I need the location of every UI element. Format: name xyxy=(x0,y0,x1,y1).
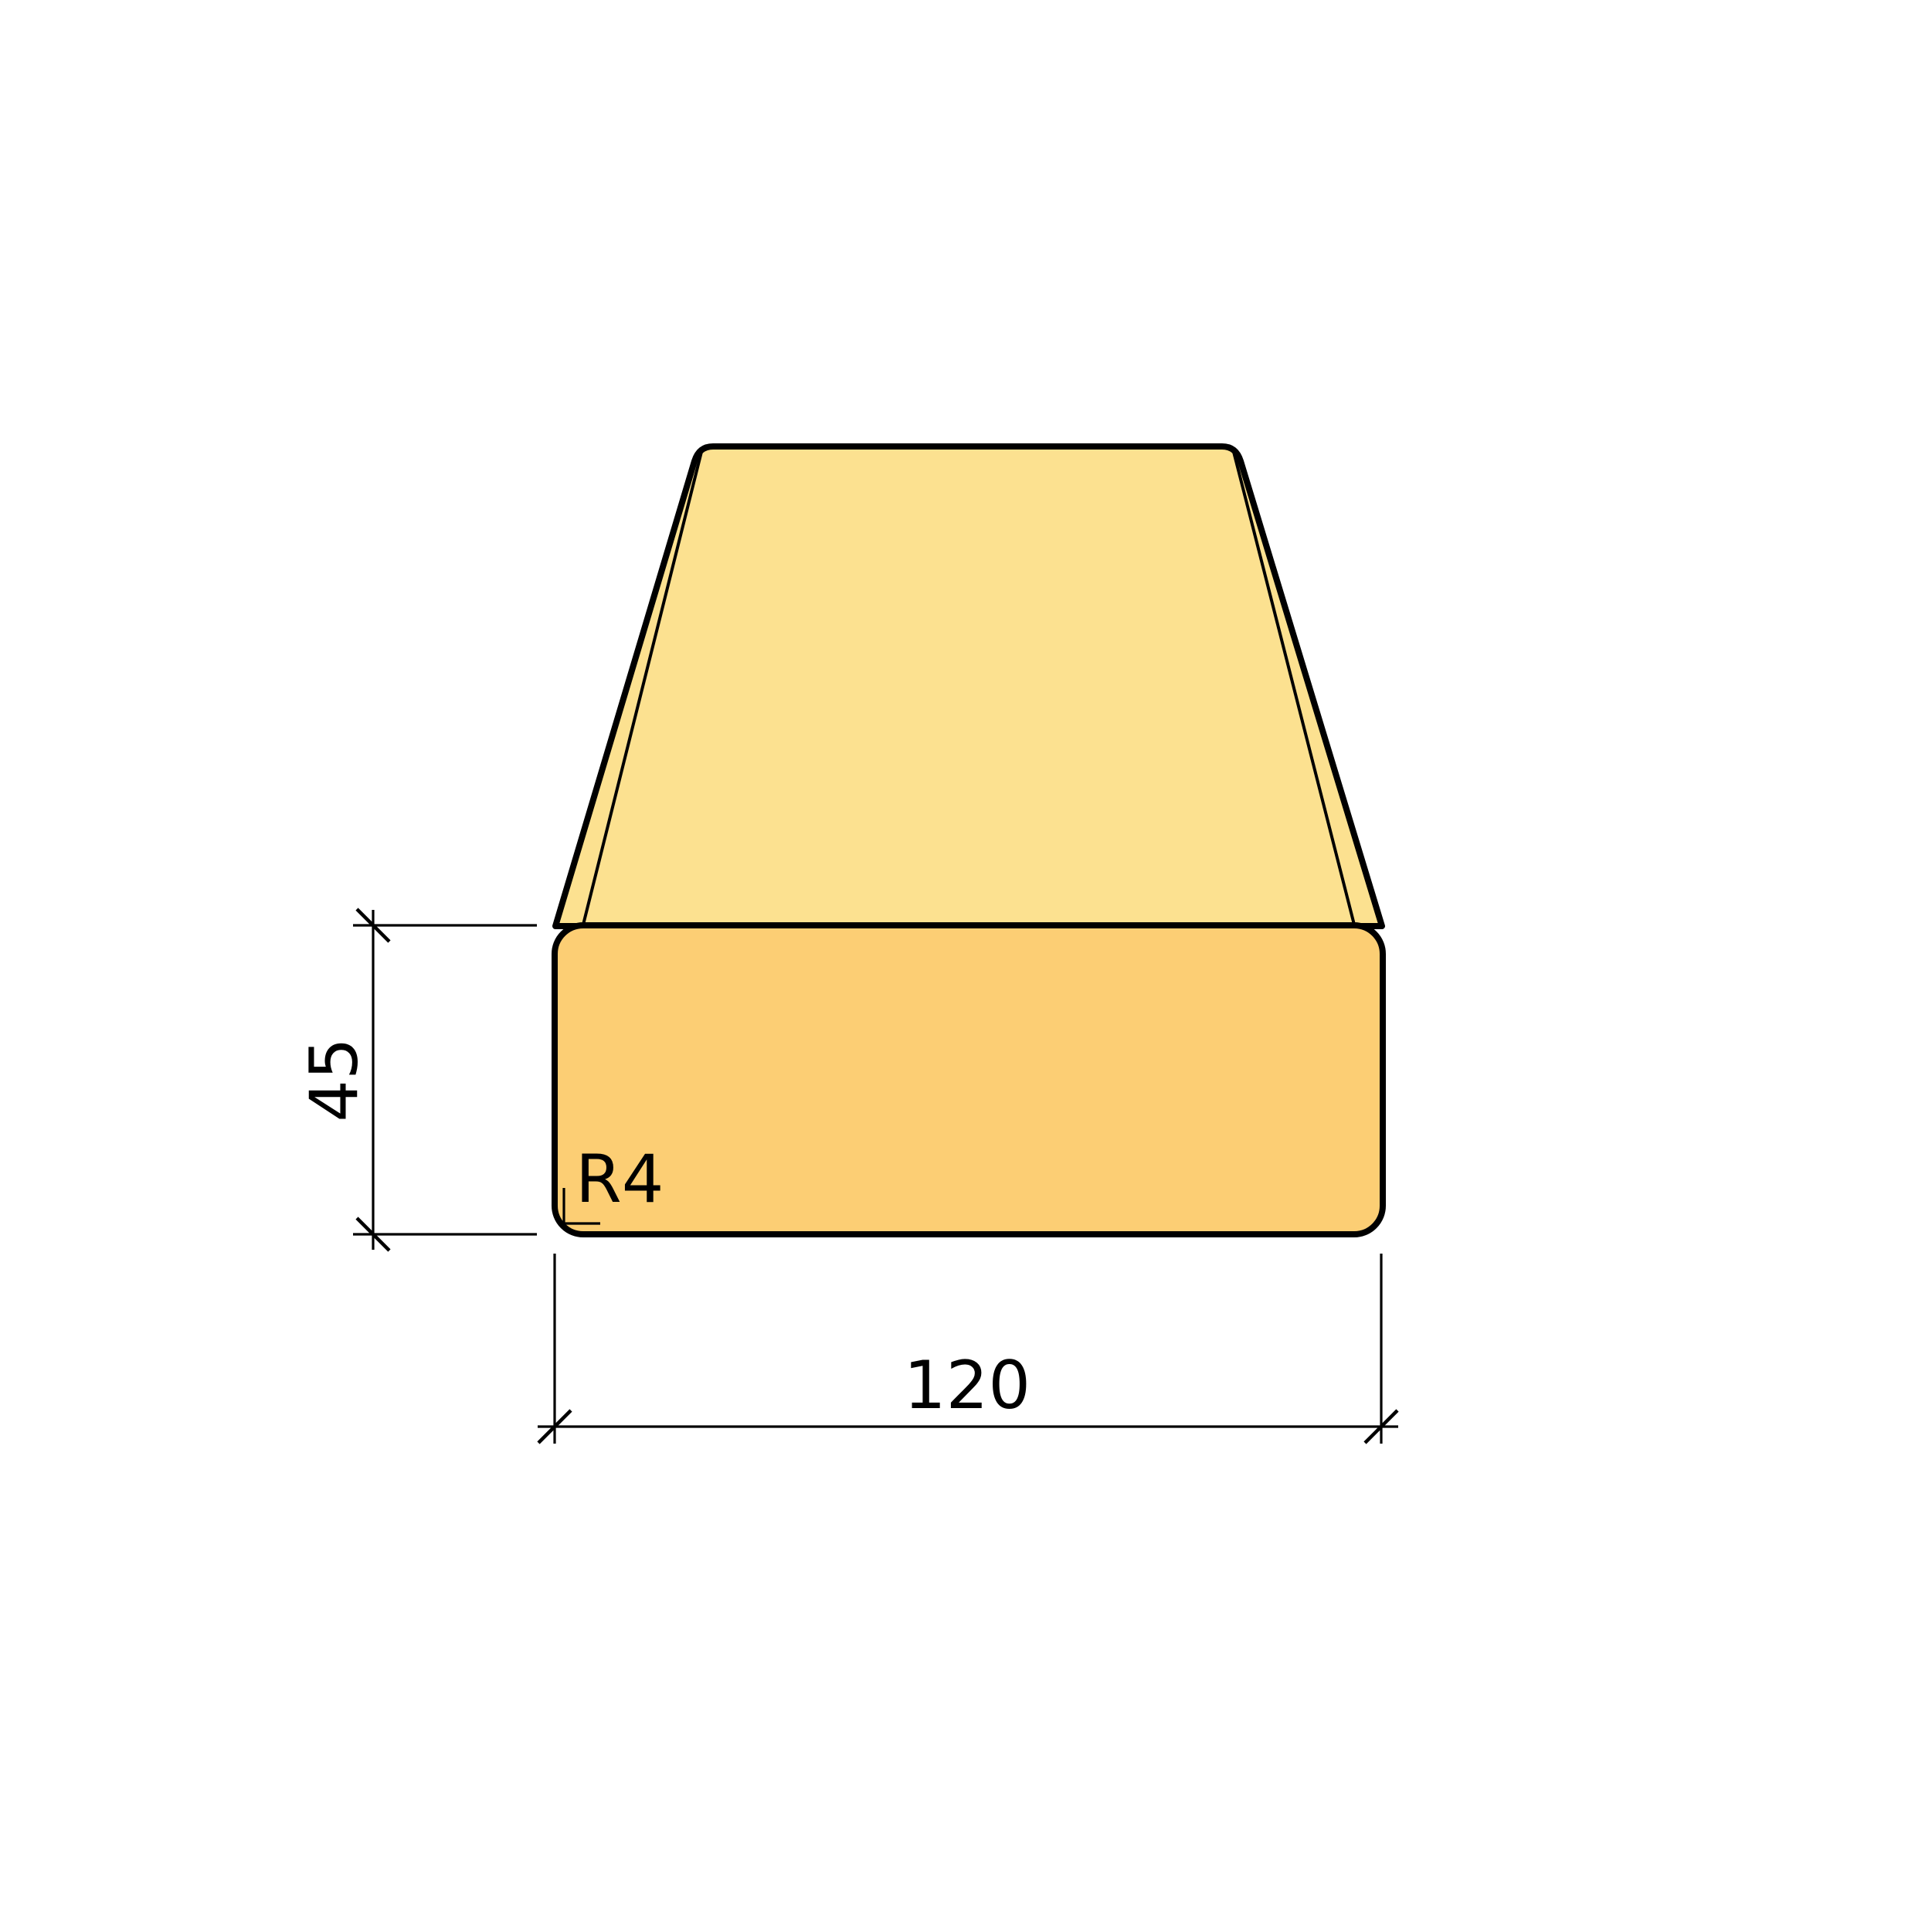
height-dimension: 45 xyxy=(296,909,537,1251)
technical-drawing: 45 120 R4 xyxy=(0,0,1932,1931)
radius-callout: R4 xyxy=(564,1141,664,1223)
board-front-face xyxy=(555,925,1383,1234)
board-top-face xyxy=(555,446,1382,926)
height-dimension-label: 45 xyxy=(296,1037,373,1122)
radius-label: R4 xyxy=(576,1141,664,1218)
drawing-canvas: 45 120 R4 xyxy=(0,0,1932,1931)
width-dimension: 120 xyxy=(538,1254,1398,1444)
width-dimension-label: 120 xyxy=(904,1347,1031,1424)
